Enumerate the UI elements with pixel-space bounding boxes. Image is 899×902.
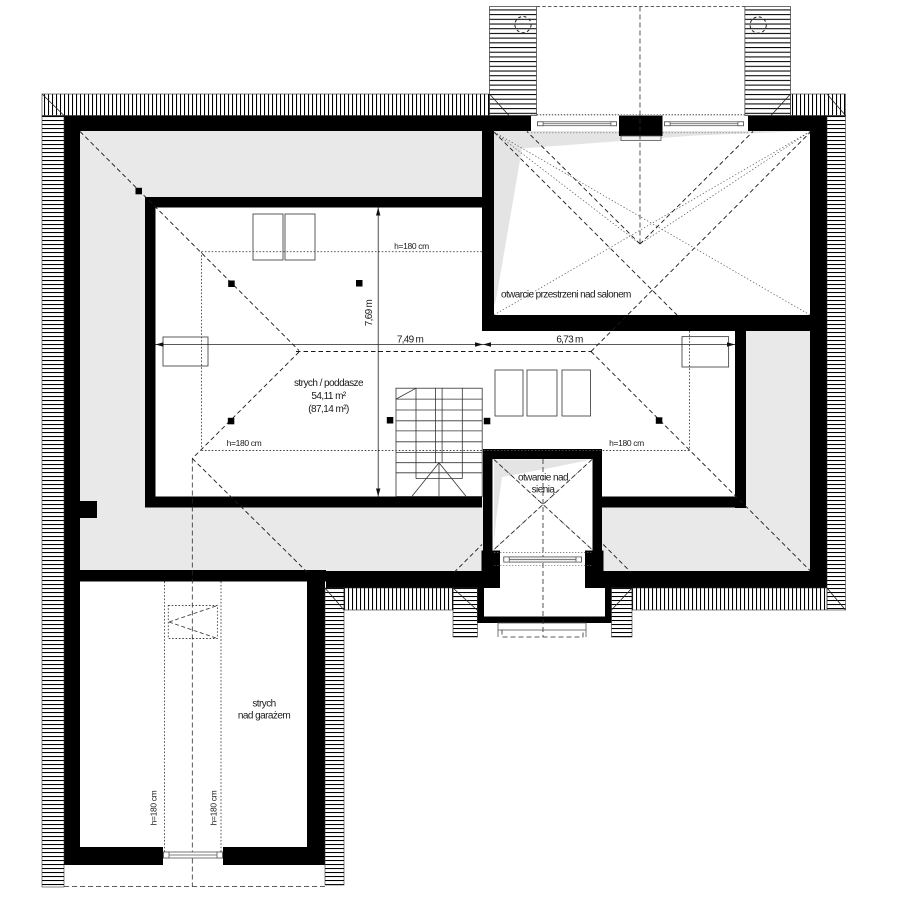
svg-text:otwarcie nad: otwarcie nad bbox=[518, 473, 568, 484]
svg-text:strych / poddasze: strych / poddasze bbox=[294, 378, 364, 389]
svg-text:nad garażem: nad garażem bbox=[238, 711, 291, 722]
svg-text:h=180 cm: h=180 cm bbox=[394, 241, 429, 251]
svg-text:otwarcie przestrzeni nad salon: otwarcie przestrzeni nad salonem bbox=[501, 290, 631, 301]
svg-text:sienią: sienią bbox=[532, 485, 556, 496]
svg-text:h=180 cm: h=180 cm bbox=[149, 790, 159, 825]
svg-text:strych: strych bbox=[252, 699, 275, 710]
svg-text:54,11 m²: 54,11 m² bbox=[311, 391, 347, 402]
svg-text:h=180 cm: h=180 cm bbox=[227, 438, 262, 448]
svg-text:h=180 cm: h=180 cm bbox=[609, 438, 644, 448]
svg-text:7,49 m: 7,49 m bbox=[397, 335, 424, 346]
svg-text:(87,14 m²): (87,14 m²) bbox=[308, 404, 349, 415]
svg-text:7,69 m: 7,69 m bbox=[364, 299, 375, 326]
svg-text:h=180 cm: h=180 cm bbox=[209, 790, 219, 825]
svg-text:6,73 m: 6,73 m bbox=[556, 335, 583, 346]
